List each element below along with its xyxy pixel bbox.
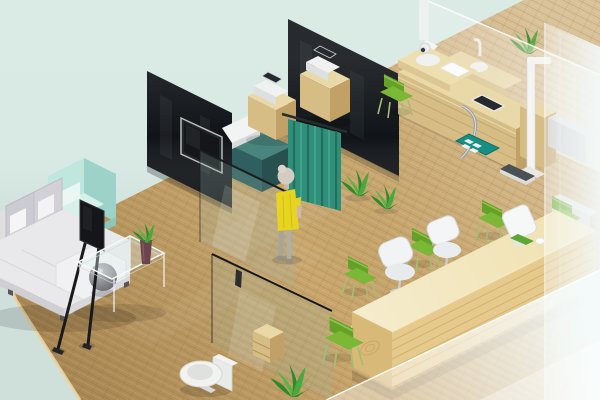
person-hair-bun [278, 165, 286, 173]
glass-frame-post [419, 0, 428, 40]
chair-seat [385, 264, 415, 281]
mouse [536, 238, 545, 244]
isometric-interior-render [0, 0, 600, 400]
chair-shadow [323, 354, 353, 363]
door-handle [235, 269, 242, 288]
scene-canvas [0, 0, 600, 400]
chair-shadow [343, 288, 369, 296]
person-hand [297, 214, 302, 219]
lab-device-base [416, 54, 440, 66]
lab-device-lens [421, 48, 425, 52]
plant-vase [140, 240, 152, 264]
stadiometer-pole [527, 60, 535, 172]
person-foot [276, 256, 284, 260]
wall-reflection [350, 70, 364, 140]
curtain-pleats [294, 121, 336, 209]
wall-reflection [160, 95, 172, 160]
storage-shelf [253, 324, 284, 363]
person-foot [285, 259, 293, 263]
toilet-seat-inner [187, 364, 213, 380]
chair-seat [433, 242, 461, 258]
easel-tv-glint [83, 205, 92, 232]
table-shadow [74, 304, 166, 322]
